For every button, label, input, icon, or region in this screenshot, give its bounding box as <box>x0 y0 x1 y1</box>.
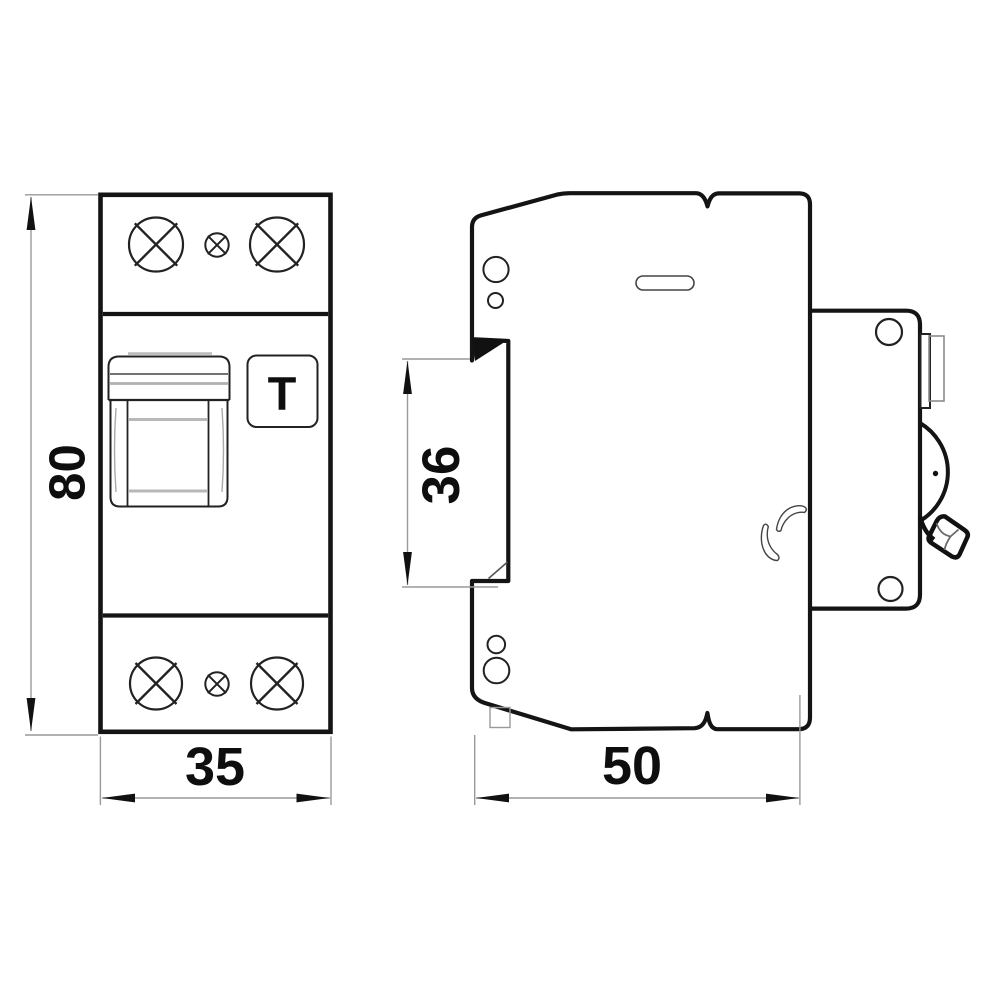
svg-text:35: 35 <box>185 737 245 797</box>
svg-text:T: T <box>268 367 297 420</box>
svg-text:80: 80 <box>38 444 95 501</box>
svg-text:36: 36 <box>412 446 471 505</box>
svg-text:50: 50 <box>602 736 662 796</box>
